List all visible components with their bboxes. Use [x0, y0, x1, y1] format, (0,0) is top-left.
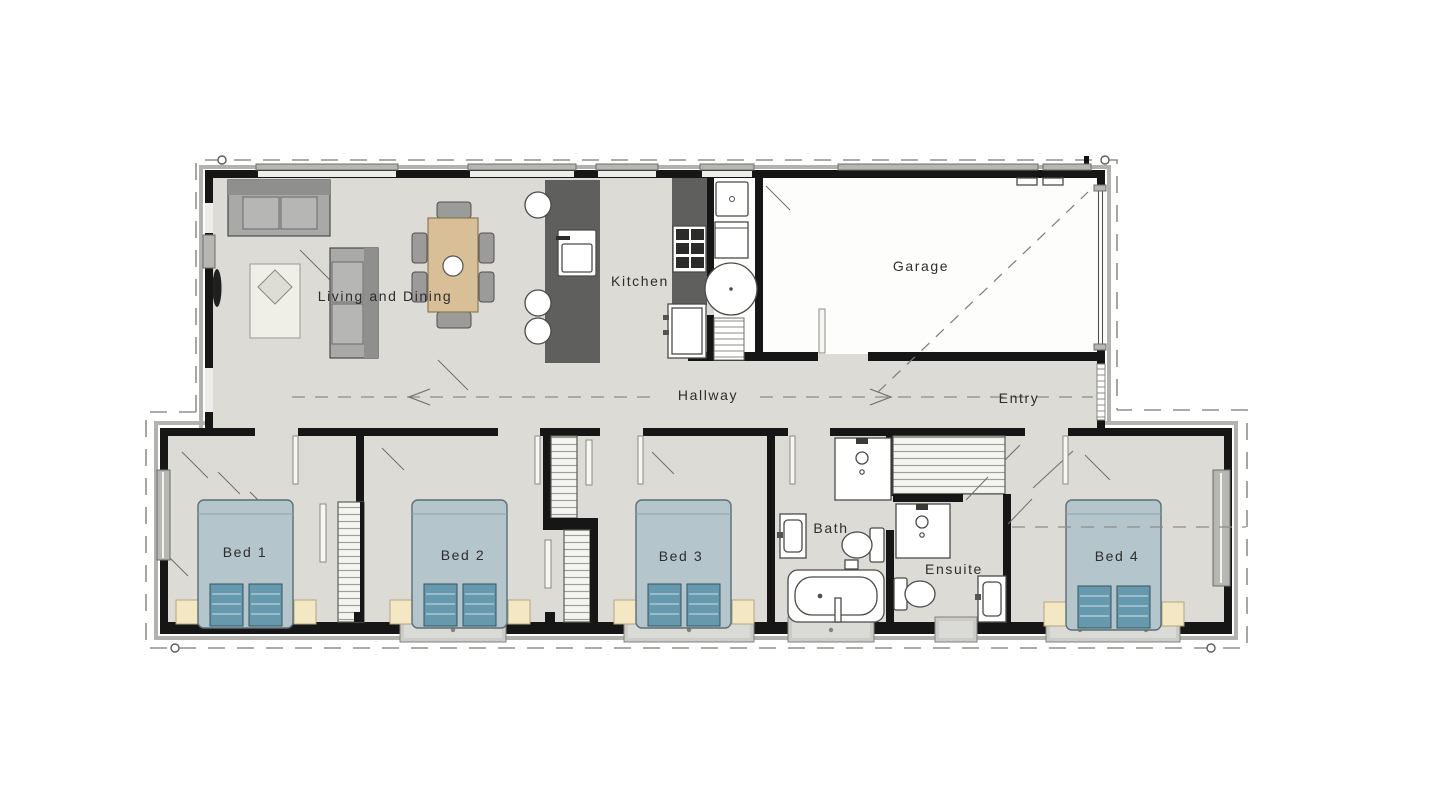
- kitchen-island-icon: [545, 180, 600, 363]
- dining-chair-icon: [437, 312, 471, 328]
- nightstand-icon: [1044, 602, 1066, 626]
- bar-stool-icon: [525, 290, 551, 316]
- nightstand-icon: [508, 600, 530, 624]
- bar-stool-icon: [525, 318, 551, 344]
- cooktop-counter: [672, 178, 707, 305]
- wardrobe-icon: [564, 530, 590, 622]
- room-label-bed4: Bed 4: [1095, 548, 1140, 564]
- room-label-bed1: Bed 1: [223, 544, 268, 560]
- room-label-bath: Bath: [813, 520, 848, 536]
- downpipe-marker: [1207, 644, 1215, 652]
- garage-entry-door-leaf: [819, 309, 825, 353]
- vanity-icon: [975, 576, 1006, 622]
- room-label-living: Living and Dining: [318, 288, 453, 304]
- room-label-kitchen: Kitchen: [611, 273, 669, 289]
- wardrobe-door-leaf: [586, 440, 592, 485]
- bar-stool-icon: [525, 192, 551, 218]
- nightstand-icon: [390, 600, 412, 624]
- floor-plan-page: Living and Dining Kitchen Garage Hallway…: [0, 0, 1440, 810]
- room-label-entry: Entry: [999, 390, 1040, 406]
- rug-icon: [250, 264, 300, 338]
- pillow-icon: [249, 584, 282, 626]
- window-sill: [935, 617, 977, 642]
- wardrobe-icon: [551, 436, 577, 518]
- dining-chair-icon: [437, 202, 471, 218]
- wardrobe-door-leaf: [320, 504, 326, 562]
- toilet-icon: [894, 578, 935, 610]
- floor-plan-svg: Living and Dining Kitchen Garage Hallway…: [0, 0, 1440, 810]
- dining-chair-icon: [479, 233, 494, 263]
- downpipe-marker: [218, 156, 226, 164]
- nightstand-icon: [294, 600, 316, 624]
- room-label-hallway: Hallway: [678, 387, 738, 403]
- vanity-icon: [777, 514, 806, 558]
- bed4-door-leaf: [1063, 436, 1068, 484]
- nightstand-icon: [732, 600, 754, 624]
- nightstand-icon: [176, 600, 198, 624]
- garage-bottom-wall: [688, 352, 818, 361]
- island-sink-icon: [556, 230, 596, 276]
- room-label-bed2: Bed 2: [441, 547, 486, 563]
- scullery-partition: [707, 178, 714, 285]
- room-label-bed3: Bed 3: [659, 548, 704, 564]
- hot-water-cylinder-icon: [705, 263, 757, 315]
- dining-chair-icon: [479, 272, 494, 302]
- bath-door-leaf: [790, 436, 795, 484]
- pantry-shelves-icon: [714, 318, 744, 360]
- laundry-sink-icon: [716, 182, 748, 216]
- shower-icon: [835, 438, 891, 500]
- floor-lamp-icon: [213, 269, 222, 307]
- bed3-door-leaf: [638, 436, 643, 484]
- downpipe-marker: [171, 644, 179, 652]
- hallway-floor: [209, 358, 1104, 430]
- pillow-icon: [424, 584, 457, 626]
- bed1-door-leaf: [293, 436, 298, 484]
- fridge-icon: [663, 304, 706, 358]
- nightstand-icon: [1162, 602, 1184, 626]
- dining-chair-icon: [412, 233, 427, 263]
- garage-bottom-wall: [868, 352, 1097, 361]
- pillow-icon: [1078, 586, 1111, 628]
- pillow-icon: [687, 584, 720, 626]
- pillow-icon: [1117, 586, 1150, 628]
- wardrobe-door-leaf: [545, 540, 551, 588]
- garage-left-wall: [755, 178, 763, 361]
- garage-vent: [1043, 178, 1063, 185]
- cooktop-icon: [673, 226, 706, 272]
- pillow-icon: [463, 584, 496, 626]
- pillow-icon: [648, 584, 681, 626]
- pillow-icon: [210, 584, 243, 626]
- washer-icon: [715, 222, 748, 258]
- nightstand-icon: [614, 600, 636, 624]
- walk-in-wardrobe-icon: [893, 436, 1005, 494]
- bed2-door-leaf: [535, 436, 540, 484]
- shower-icon: [896, 504, 950, 558]
- room-label-ensuite: Ensuite: [925, 561, 983, 577]
- room-label-garage: Garage: [893, 258, 949, 274]
- sofa-icon: [228, 180, 330, 236]
- entry-door: [1097, 364, 1105, 420]
- downpipe-marker: [1101, 156, 1109, 164]
- garage-vent: [1017, 178, 1037, 185]
